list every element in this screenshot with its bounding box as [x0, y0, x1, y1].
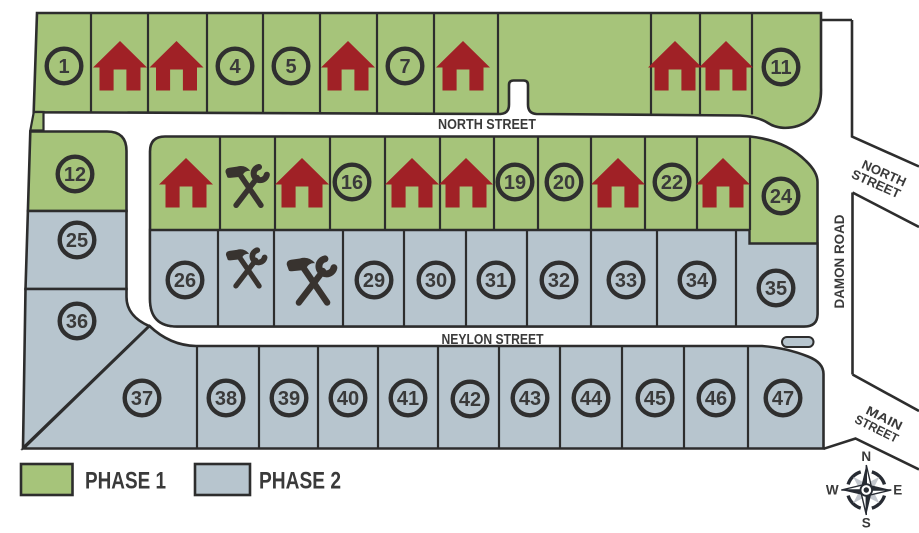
svg-text:46: 46 — [705, 388, 727, 410]
svg-text:NORTH STREET: NORTH STREET — [438, 117, 536, 133]
svg-text:S: S — [862, 516, 871, 531]
svg-text:19: 19 — [504, 172, 526, 194]
svg-text:36: 36 — [66, 311, 88, 333]
svg-text:5: 5 — [285, 56, 296, 78]
svg-text:33: 33 — [615, 270, 637, 292]
svg-text:24: 24 — [770, 186, 793, 208]
svg-text:35: 35 — [765, 278, 787, 300]
svg-text:42: 42 — [459, 389, 481, 411]
svg-text:PHASE 2: PHASE 2 — [259, 468, 341, 495]
svg-text:43: 43 — [519, 388, 541, 410]
svg-text:4: 4 — [229, 56, 241, 78]
svg-text:7: 7 — [399, 56, 410, 78]
svg-text:45: 45 — [644, 388, 666, 410]
svg-text:26: 26 — [174, 270, 196, 292]
svg-text:37: 37 — [131, 388, 153, 410]
svg-text:PHASE 1: PHASE 1 — [85, 468, 166, 495]
svg-text:DAMON ROAD: DAMON ROAD — [832, 214, 847, 308]
svg-text:41: 41 — [397, 388, 419, 410]
svg-text:1: 1 — [58, 56, 69, 78]
svg-text:44: 44 — [580, 388, 603, 410]
svg-text:E: E — [893, 483, 902, 498]
svg-text:NEYLON STREET: NEYLON STREET — [442, 332, 544, 348]
svg-text:16: 16 — [341, 172, 363, 194]
svg-text:29: 29 — [363, 270, 385, 292]
svg-text:38: 38 — [215, 388, 237, 410]
svg-text:32: 32 — [548, 270, 570, 292]
svg-text:22: 22 — [661, 172, 683, 194]
svg-text:47: 47 — [772, 388, 794, 410]
svg-text:11: 11 — [770, 57, 791, 79]
svg-text:39: 39 — [278, 388, 300, 410]
svg-text:31: 31 — [485, 270, 507, 292]
svg-text:N: N — [861, 449, 871, 464]
svg-text:40: 40 — [337, 388, 359, 410]
svg-text:12: 12 — [64, 164, 86, 186]
svg-text:W: W — [826, 483, 839, 498]
svg-text:34: 34 — [686, 270, 709, 292]
svg-text:30: 30 — [425, 270, 447, 292]
svg-text:25: 25 — [66, 230, 88, 252]
svg-text:20: 20 — [553, 172, 575, 194]
